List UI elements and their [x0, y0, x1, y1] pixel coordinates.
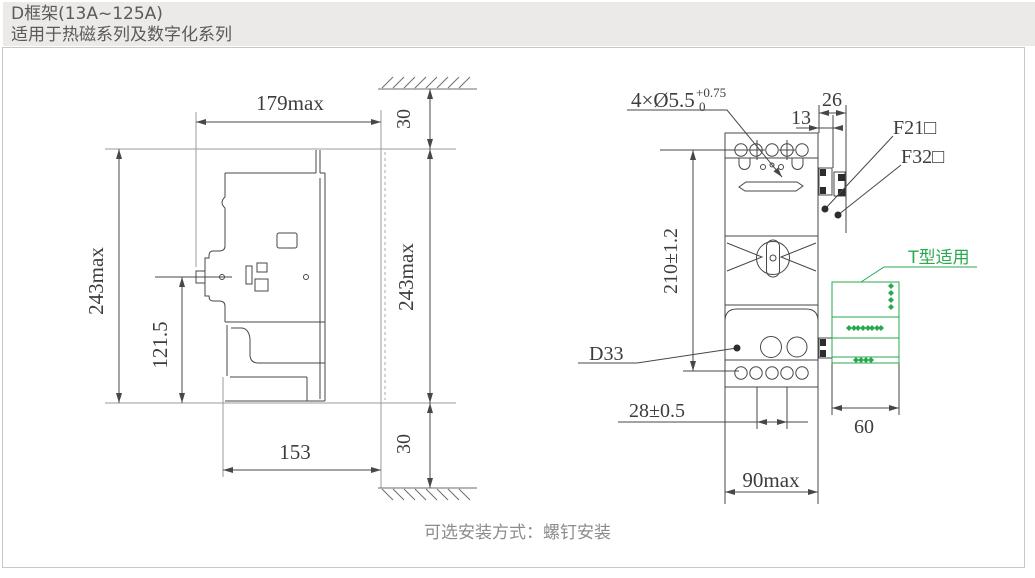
- dim-side-depth: 153: [279, 440, 311, 464]
- side-detail-rect-3: [246, 266, 252, 284]
- dim-side-handle-height: 121.5: [148, 321, 172, 368]
- side-view: 179max 243max 121.5 153 30 243max 30: [84, 77, 477, 500]
- t-type-label: T型适用: [907, 248, 969, 268]
- side-detail-rect-1: [257, 263, 267, 272]
- t-type-accessory: T型适用: [832, 248, 977, 363]
- side-detail-window: [277, 233, 297, 248]
- t-type-outline: [832, 267, 977, 363]
- bottom-cover-holes: [761, 337, 808, 358]
- front-view: T型适用 4×Ø5.5 +0.75 0 13 26 F21□ F32□ 210±…: [578, 85, 977, 504]
- mounting-caption: 可选安装方式：螺钉安装: [0, 518, 1035, 543]
- dim-offset-13: 13: [791, 107, 811, 129]
- label-mounting-holes: 4×Ø5.5: [631, 88, 695, 112]
- leader-dots: [734, 206, 842, 352]
- label-f21: F21□: [893, 117, 936, 139]
- side-detail-rect-2: [255, 279, 268, 291]
- dim-bottom-clearance: 30: [393, 434, 415, 454]
- dim-side-height-left: 243max: [84, 247, 108, 315]
- label-f32: F32□: [901, 146, 944, 168]
- label-hole-tol-lower: 0: [699, 99, 706, 114]
- dim-front-width-90: 90max: [742, 468, 800, 492]
- dim-side-width: 179max: [256, 91, 324, 115]
- page: D框架(13A~125A) 适用于热磁系列及数字化系列 179max 243ma…: [0, 0, 1035, 578]
- technical-drawing: 179max 243max 121.5 153 30 243max 30: [0, 0, 1035, 578]
- label-d33: D33: [589, 343, 623, 365]
- dim-pole-pitch-28: 28±0.5: [629, 400, 685, 422]
- dim-hole-span-210: 210±1.2: [660, 228, 682, 294]
- t-type-contacts: [846, 283, 894, 363]
- rotary-handle-bar: [767, 240, 780, 277]
- dim-side-height-right: 243max: [394, 243, 418, 311]
- dim-accessory-width-26: 26: [822, 89, 842, 111]
- side-body-outline: [196, 150, 325, 401]
- front-small-screws: [761, 163, 784, 170]
- dim-t-depth-60: 60: [854, 416, 874, 438]
- terminal-holes-bottom: [735, 367, 808, 379]
- label-hole-tol-upper: +0.75: [696, 85, 726, 100]
- dim-top-clearance: 30: [393, 109, 415, 129]
